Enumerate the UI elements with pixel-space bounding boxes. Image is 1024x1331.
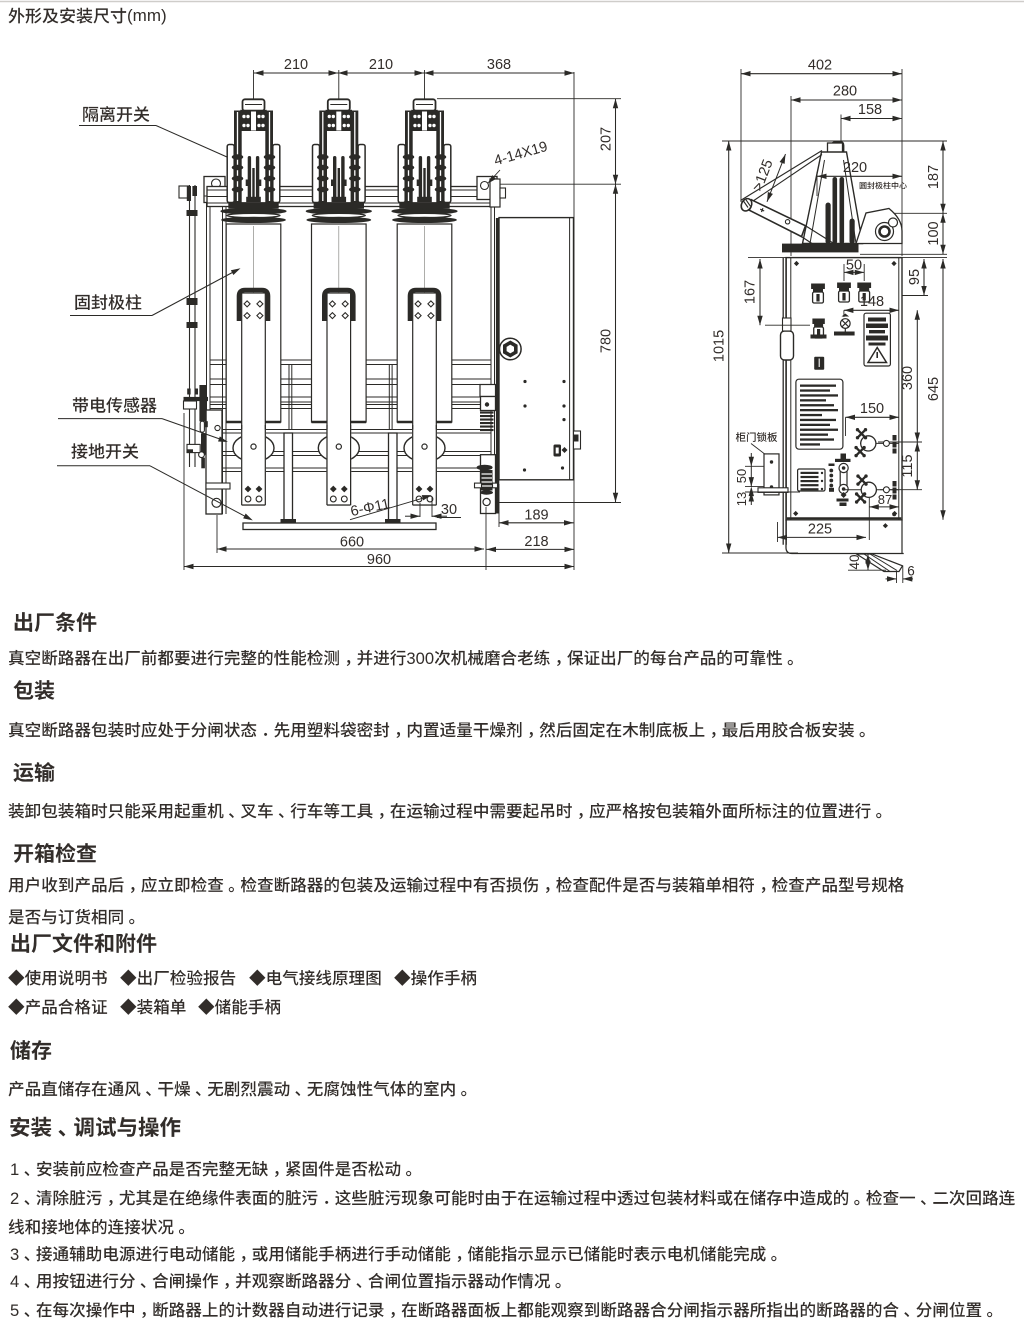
svg-text:300: 300 <box>406 649 434 668</box>
svg-text:368: 368 <box>487 57 511 73</box>
svg-text:1: 1 <box>10 1160 19 1179</box>
svg-text:50: 50 <box>846 258 862 274</box>
svg-text:13: 13 <box>734 492 749 506</box>
svg-text:960: 960 <box>367 552 391 568</box>
svg-text:158: 158 <box>858 102 882 118</box>
svg-text:87: 87 <box>878 492 892 507</box>
svg-text:6: 6 <box>907 564 915 579</box>
svg-text:100: 100 <box>926 221 942 245</box>
svg-text:645: 645 <box>926 377 942 401</box>
svg-text:780: 780 <box>599 329 615 353</box>
svg-text:280: 280 <box>833 84 857 100</box>
svg-text:167: 167 <box>743 280 759 304</box>
svg-text:220: 220 <box>843 160 867 176</box>
svg-text:225: 225 <box>808 522 832 538</box>
svg-text:148: 148 <box>860 294 884 310</box>
svg-text:1015: 1015 <box>712 330 728 362</box>
svg-text:187: 187 <box>926 165 942 189</box>
svg-text:2: 2 <box>10 1189 19 1208</box>
svg-text:3: 3 <box>10 1245 19 1264</box>
svg-text:150: 150 <box>860 401 884 417</box>
svg-text:4: 4 <box>10 1272 19 1291</box>
svg-text:218: 218 <box>524 534 548 550</box>
svg-text:210: 210 <box>284 57 308 73</box>
svg-text:210: 210 <box>369 57 393 73</box>
svg-text:95: 95 <box>907 269 923 285</box>
svg-text:360: 360 <box>900 366 916 390</box>
svg-text:660: 660 <box>340 535 364 551</box>
svg-text:30: 30 <box>441 502 457 518</box>
svg-text:5: 5 <box>10 1301 19 1320</box>
svg-text:(mm): (mm) <box>127 6 167 25</box>
svg-text:50: 50 <box>734 469 749 483</box>
svg-text:189: 189 <box>524 508 548 524</box>
svg-text:207: 207 <box>599 127 615 151</box>
svg-text:40: 40 <box>847 554 862 569</box>
svg-text:402: 402 <box>808 58 832 74</box>
svg-text:115: 115 <box>900 454 916 477</box>
